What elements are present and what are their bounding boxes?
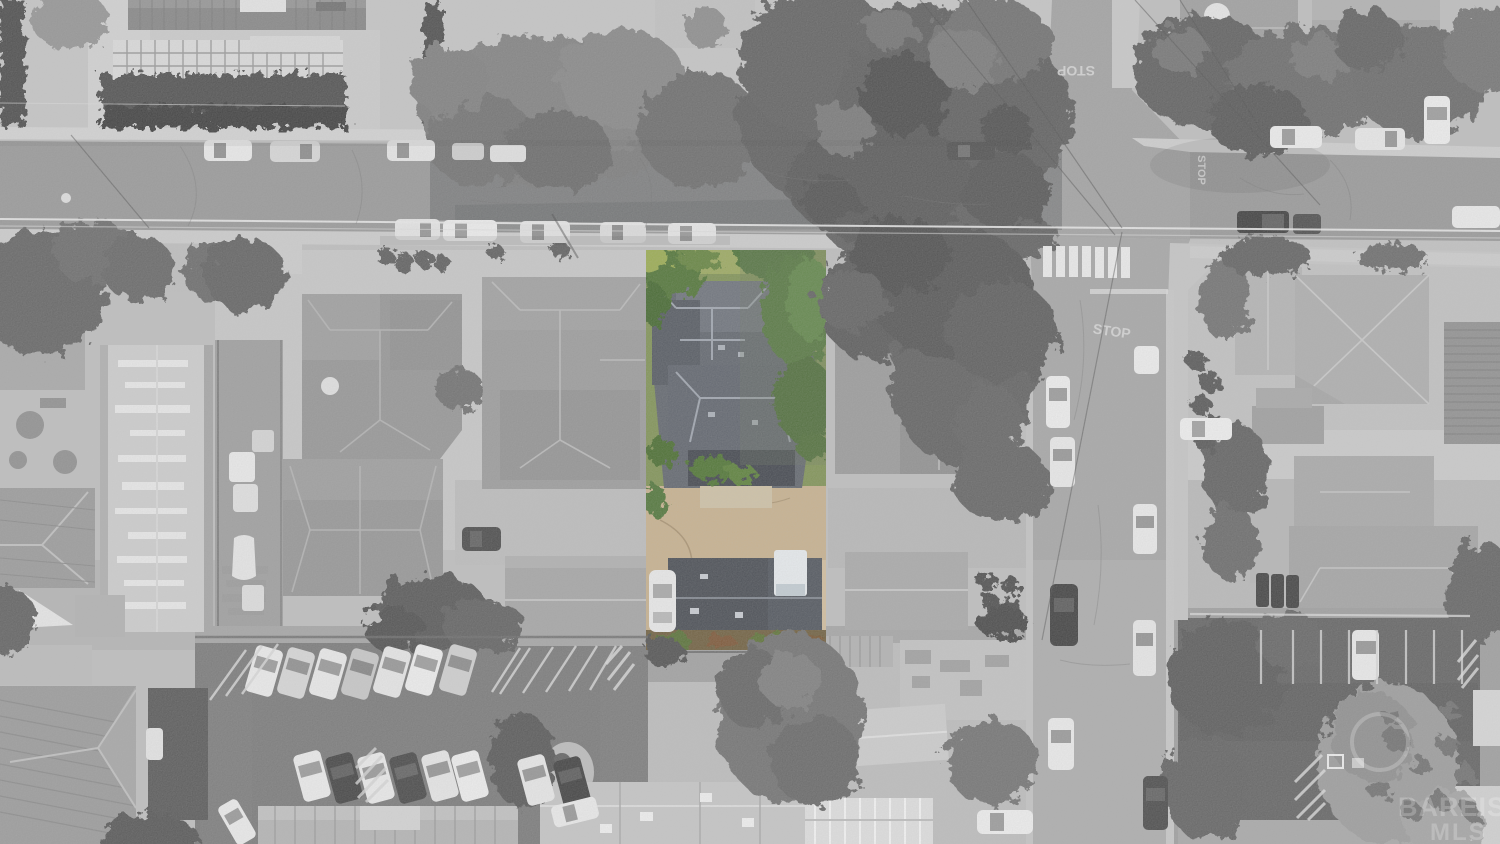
svg-text:BAREIS: BAREIS — [1398, 792, 1500, 822]
svg-text:MLS: MLS — [1430, 819, 1487, 844]
